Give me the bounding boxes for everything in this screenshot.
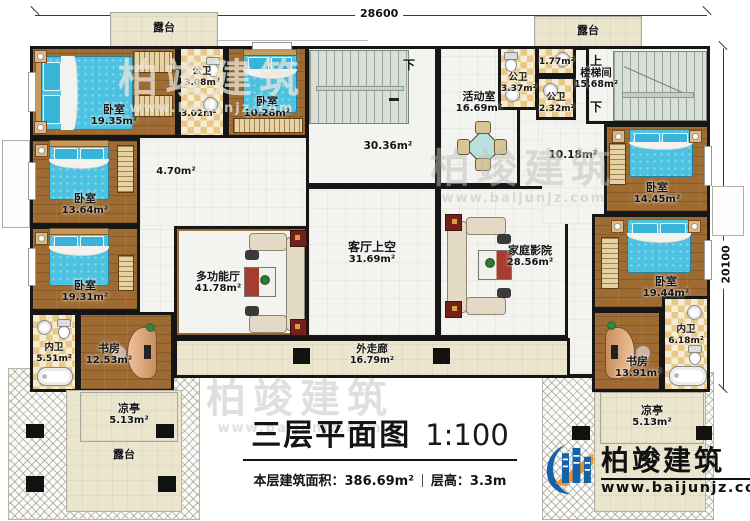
stairs-icon — [309, 50, 409, 124]
pillar — [26, 424, 44, 438]
hall-area-label: 4.70m² — [146, 166, 206, 177]
room-bedroom-mid-left: 卧室13.64m² — [30, 138, 140, 226]
bathtub-icon — [669, 366, 707, 386]
nightstand-icon — [689, 130, 702, 143]
monitor-icon — [144, 345, 151, 359]
room-bedroom-low-left: 卧室19.31m² — [30, 226, 140, 312]
stairwell-label: 楼梯间 15.68m² — [564, 68, 628, 90]
room-bedroom-top-right: 卧室14.45m² — [604, 124, 710, 214]
bathtub-icon — [37, 367, 73, 386]
sink-icon — [687, 305, 702, 320]
room-label: 公卫3.37m² — [501, 73, 535, 94]
room-multi-function-hall: 多功能厅41.78m² — [174, 226, 308, 338]
sink-icon — [37, 320, 52, 335]
nightstand-icon — [688, 220, 701, 233]
room-study-left: 书房12.53m² — [78, 312, 174, 392]
table-icon — [457, 121, 507, 171]
nightstand-icon — [611, 220, 624, 233]
dimension-tick — [30, 6, 39, 15]
floor-plan-canvas: 28600 20100 露台 露台 露台 露台 卧室19.35m² 公卫3.08 — [0, 0, 750, 521]
room-inner-bath-right: 内卫6.18m² — [662, 296, 710, 392]
room-label: 卧室19.31m² — [33, 280, 137, 304]
room-label: 外走廊 16.79m² — [177, 344, 567, 366]
wardrobe-icon — [609, 143, 626, 185]
room-public-bath-top: 公卫3.08m² 3.02m² — [178, 46, 226, 138]
drawing-title-row: 三层平面图1:100 — [243, 410, 517, 461]
wardrobe-icon — [117, 145, 134, 193]
bed-icon — [49, 232, 109, 286]
stair-down-label: 下 — [403, 56, 415, 73]
room-label: 露台 — [535, 25, 641, 37]
window — [704, 240, 712, 280]
subtitle-divider — [422, 474, 423, 487]
room-label: 客厅上空 31.69m² — [309, 241, 435, 266]
room-label: 1.77m² — [539, 57, 573, 67]
room-label: 凉亭5.13m² — [601, 405, 703, 429]
window — [252, 42, 292, 50]
nightstand-icon — [35, 232, 48, 245]
room-label: 露台 — [111, 22, 217, 34]
room-label: 公卫3.08m² — [181, 67, 223, 88]
room-terrace-top-right: 露台 — [534, 16, 642, 50]
room-label: 公卫2.32m² — [539, 93, 573, 114]
room-label: 卧室19.35m² — [63, 104, 165, 128]
brand-logo: 柏竣建筑 www.baijunjz.com — [541, 441, 747, 501]
brand-logo-icon — [541, 441, 597, 501]
room-terrace-top-left: 露台 — [110, 12, 218, 48]
outer-corridor: 外走廊 16.79m² — [174, 338, 570, 378]
room-study-right: 书房13.91m² — [592, 310, 662, 392]
side-ledge — [712, 186, 744, 236]
corridor-area-label: 30.36m² — [353, 141, 423, 153]
room-label: 露台 — [67, 449, 181, 461]
nightstand-icon — [35, 144, 48, 157]
page-title: 三层平面图 — [251, 418, 411, 453]
dimension-top-label: 28600 — [355, 7, 403, 20]
window — [28, 72, 36, 112]
pillar — [156, 424, 174, 438]
wardrobe-icon — [233, 118, 303, 133]
stair-arrow — [624, 66, 683, 93]
room-label: 卧室10.28m² — [229, 96, 305, 120]
nightstand-icon — [612, 130, 625, 143]
room-label: 卧室13.64m² — [33, 193, 137, 217]
brand-name: 柏竣建筑 — [601, 444, 725, 477]
drawing-subtitle: 本层建筑面积：386.69m²层高：3.3m — [212, 470, 548, 489]
stair-down-label: 下 — [590, 98, 602, 115]
room-inner-bath-left: 内卫5.51m² — [30, 312, 78, 392]
nightstand-icon — [34, 121, 47, 134]
room-label: 内卫5.51m² — [33, 343, 75, 364]
pillar — [696, 426, 712, 440]
side-ledge — [2, 140, 30, 228]
room-label: 家庭影院28.56m² — [497, 245, 563, 269]
wardrobe-icon — [133, 51, 173, 73]
room-label: 凉亭5.13m² — [81, 403, 177, 427]
room-label: 书房12.53m² — [81, 343, 137, 367]
room-label: 卧室14.45m² — [607, 182, 707, 206]
nightstand-icon — [34, 50, 47, 63]
wardrobe-icon — [601, 237, 619, 289]
room-label: 内卫6.18m² — [665, 325, 707, 346]
pillar — [572, 426, 590, 440]
room-bedroom-top-mid: 卧室10.28m² — [226, 46, 308, 138]
room-label: 多功能厅41.78m² — [179, 271, 257, 295]
room-pavilion-right: 凉亭5.13m² — [600, 392, 704, 444]
bed-icon — [627, 219, 691, 273]
floor-height-text: 层高：3.3m — [431, 474, 507, 489]
pillar — [26, 476, 44, 492]
plant-icon — [607, 321, 616, 330]
toilet-icon — [688, 345, 702, 365]
room-label: 书房13.91m² — [615, 356, 659, 380]
room-label: 活动室16.69m² — [441, 91, 517, 115]
hall-left: 4.70m² — [140, 140, 306, 226]
brand-website: www.baijunjz.com — [601, 478, 750, 496]
toilet-icon — [57, 319, 71, 339]
hall-right: 10.18m² — [542, 126, 604, 224]
bed-icon — [629, 129, 693, 177]
hall-area-label: 3.02m² — [181, 109, 213, 119]
room-bedroom-top-left: 卧室19.35m² — [30, 46, 178, 138]
stair-rail-mark — [389, 98, 399, 101]
drawing-scale: 1:100 — [425, 418, 509, 452]
room-label: 卧室19.44m² — [625, 276, 707, 300]
room-bedroom-low-right: 卧室19.44m² — [592, 214, 710, 310]
dimension-right-label: 20100 — [720, 240, 733, 288]
plant-icon — [146, 323, 155, 332]
dimension-tick — [702, 6, 711, 15]
title-block: 三层平面图1:100 本层建筑面积：386.69m²层高：3.3m — [212, 410, 548, 489]
toilet-icon — [504, 52, 518, 72]
pillar — [158, 476, 176, 492]
brand-text: 柏竣建筑 www.baijunjz.com — [601, 446, 750, 495]
room-living-void: 客厅上空 31.69m² — [306, 186, 438, 338]
hall-area-label: 10.18m² — [542, 150, 604, 162]
floor-area-text: 本层建筑面积：386.69m² — [254, 474, 414, 489]
window — [704, 146, 712, 186]
